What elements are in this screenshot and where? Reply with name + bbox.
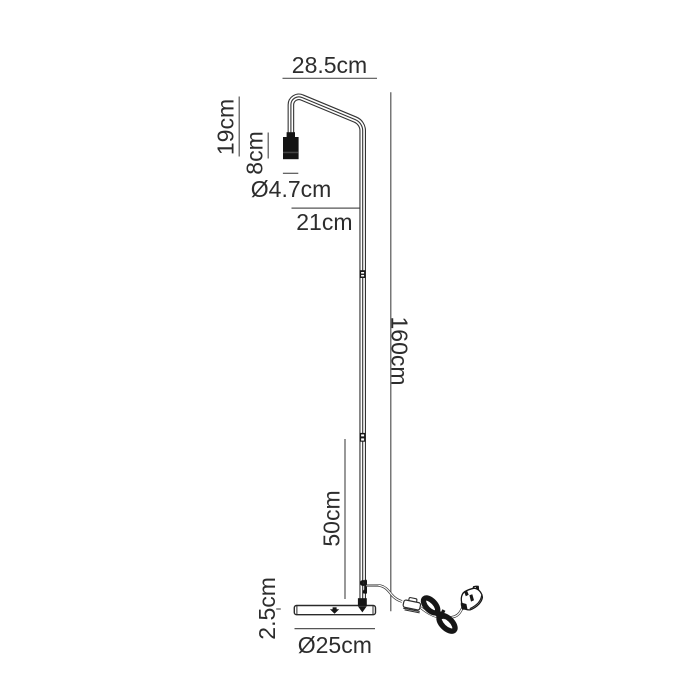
svg-text:2.5cm: 2.5cm <box>254 577 280 640</box>
svg-text:Ø25cm: Ø25cm <box>298 632 372 658</box>
svg-text:21cm: 21cm <box>296 209 352 235</box>
svg-text:160cm: 160cm <box>387 316 413 385</box>
svg-text:8cm: 8cm <box>242 131 268 174</box>
svg-text:Ø4.7cm: Ø4.7cm <box>251 176 332 202</box>
svg-text:19cm: 19cm <box>213 99 239 155</box>
svg-text:50cm: 50cm <box>319 490 345 546</box>
svg-text:28.5cm: 28.5cm <box>292 52 367 78</box>
